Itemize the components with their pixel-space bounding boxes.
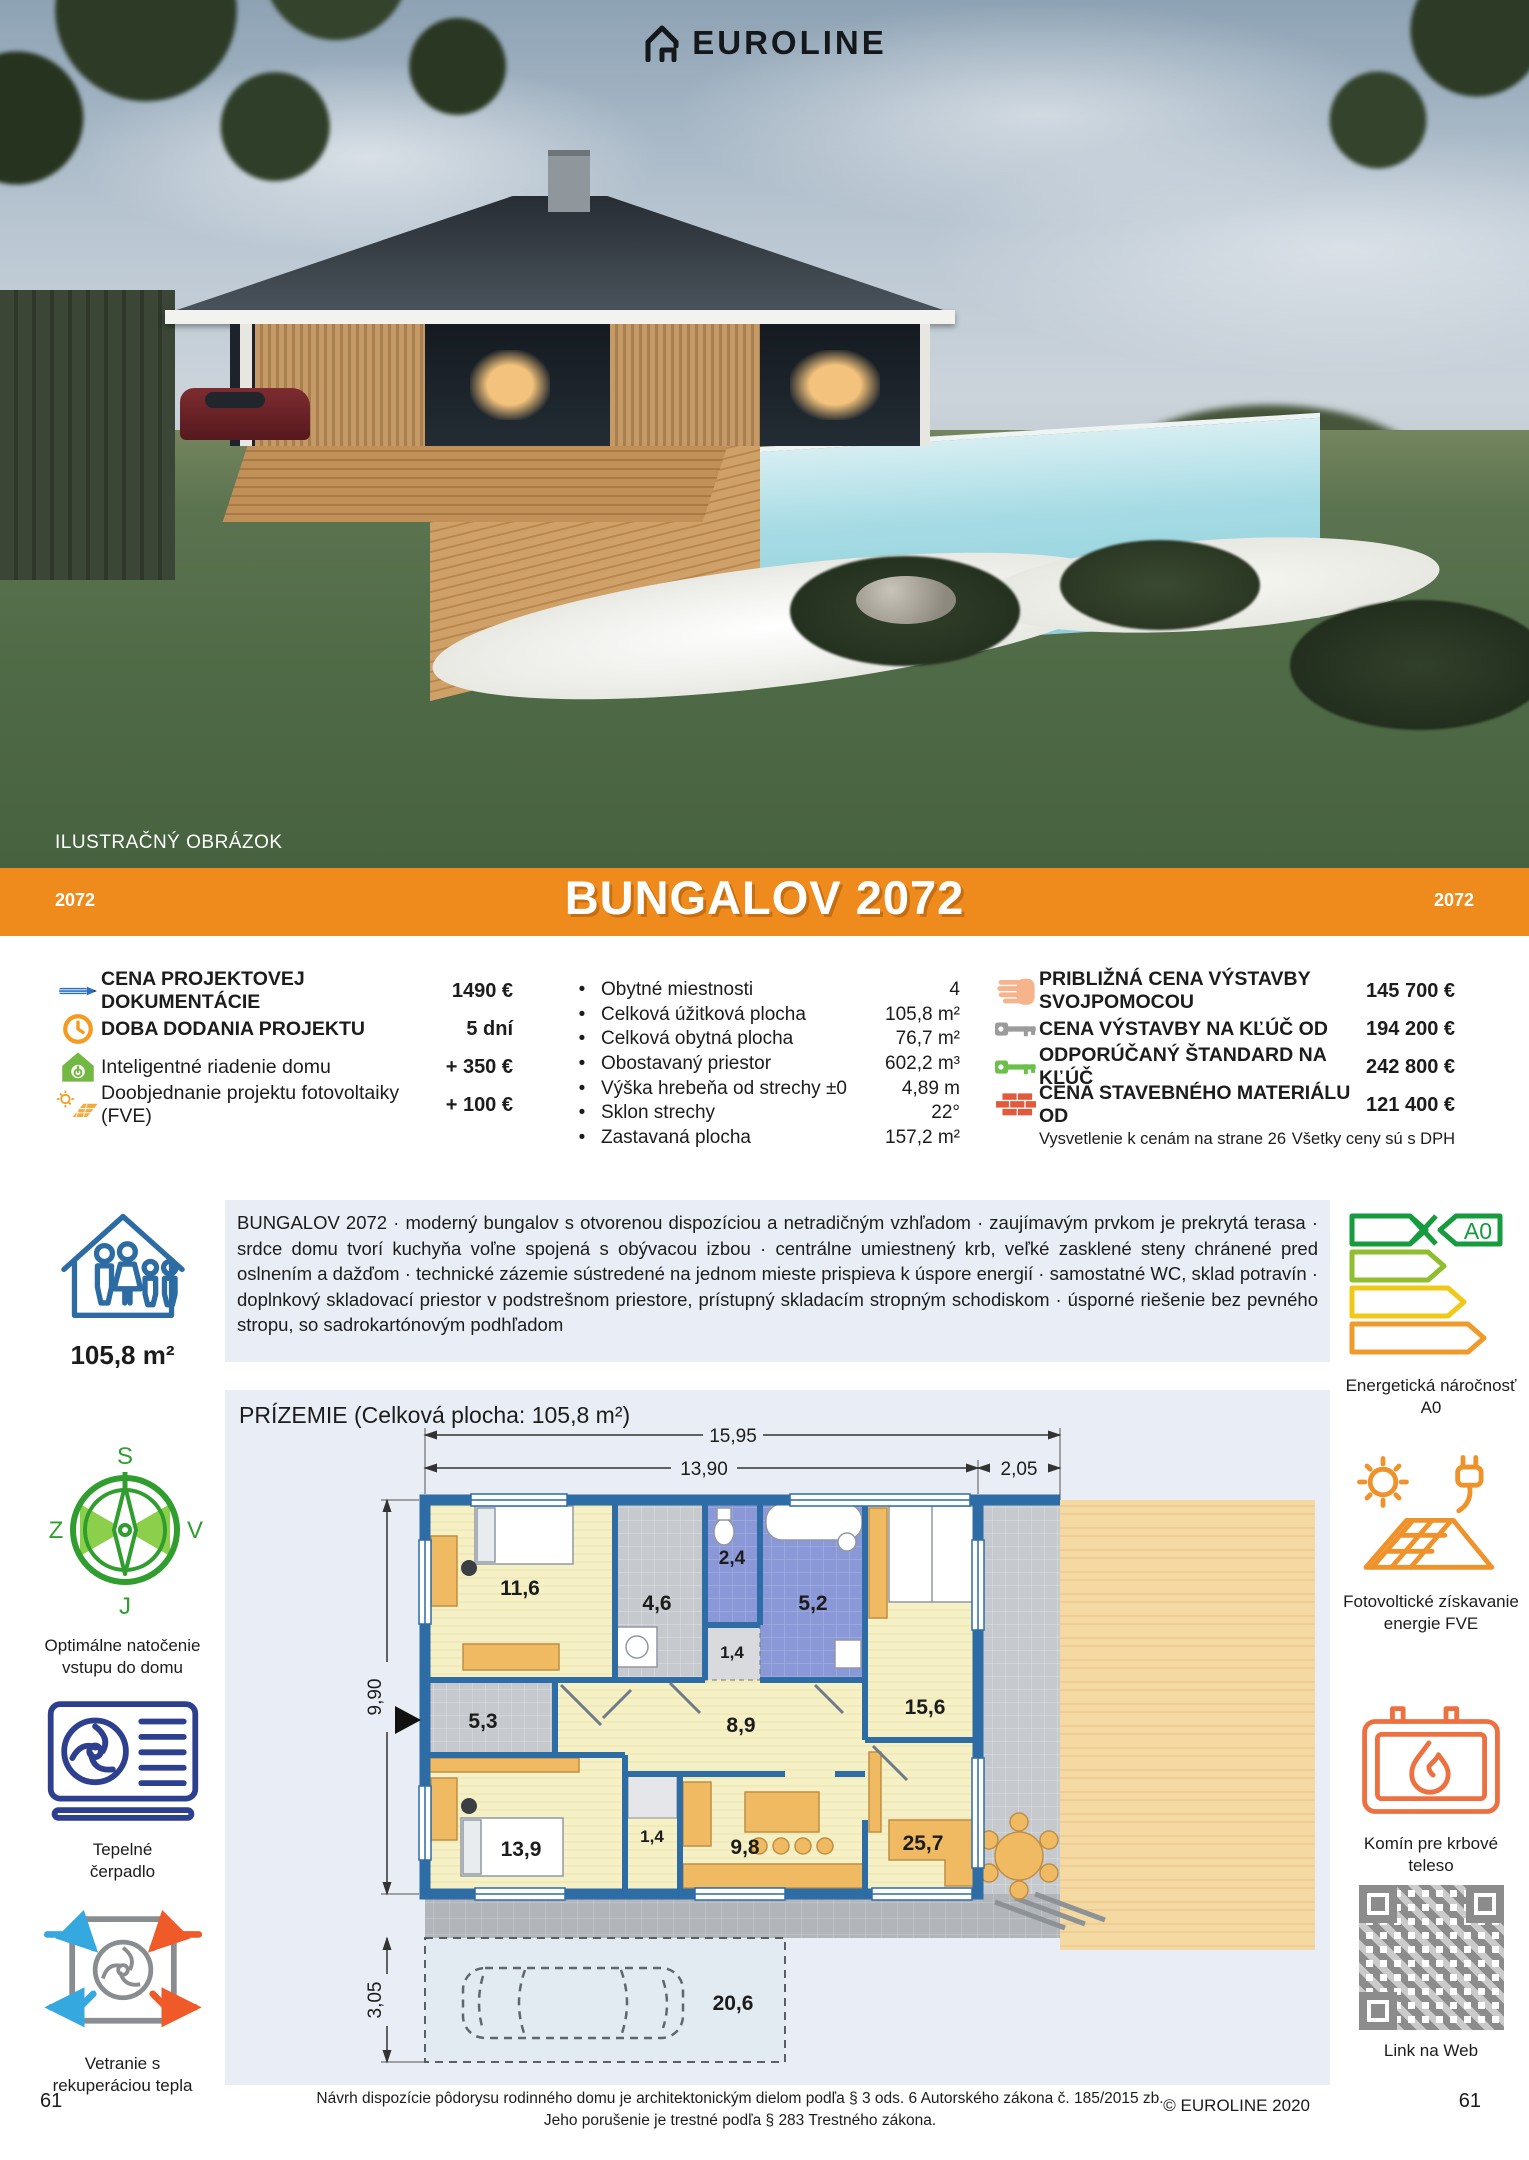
svg-text:S: S — [117, 1443, 133, 1470]
svg-text:Z: Z — [49, 1517, 64, 1544]
feature-caption: Komín pre krbové teleso — [1342, 1833, 1520, 1877]
price-note-left: Vysvetlenie k cenám na strane 26 — [1039, 1130, 1292, 1149]
solar-addon-icon — [55, 1089, 101, 1121]
entry-arrow — [395, 1706, 421, 1734]
feature-compass: S J Z V Optimálne natočenie vstupu do do… — [40, 1442, 205, 1679]
rock — [856, 576, 956, 624]
roof-fascia — [165, 310, 955, 324]
hand-icon — [993, 974, 1039, 1008]
compass-icon: S J Z V — [40, 1442, 210, 1620]
car-window — [205, 392, 265, 408]
bullet — [563, 1127, 601, 1149]
floorplan-drawing: 15,95 13,90 2,05 9,90 3,05 11,6 4,6 2,4 … — [225, 1390, 1330, 2085]
bullet — [563, 979, 601, 1001]
feature-caption: Energetická náročnosť A0 — [1342, 1375, 1520, 1419]
bullet — [563, 1053, 601, 1075]
price-row: DOBA DODANIA PROJEKTU 5 dní — [55, 1010, 513, 1048]
fireplace-icon — [1356, 1700, 1506, 1818]
spec-row: Výška hrebeňa od strechy ±04,89 m — [563, 1076, 960, 1101]
svg-text:4,6: 4,6 — [642, 1592, 671, 1615]
feature-caption: Optimálne natočenie vstupu do domu — [40, 1635, 205, 1679]
price-row: CENA PROJEKTOVEJ DOKUMENTÁCIE 1490 € — [55, 972, 513, 1010]
feature-house-family — [40, 1198, 205, 1337]
bullet — [563, 1028, 601, 1050]
price-row: Doobjednanie projektu fotovoltaiky (FVE)… — [55, 1086, 513, 1124]
svg-text:25,7: 25,7 — [903, 1832, 944, 1855]
svg-text:2,05: 2,05 — [1001, 1459, 1038, 1480]
price-row: ODPORÚČANÝ ŠTANDARD NA KĽÚČ 242 800 € — [993, 1048, 1455, 1086]
svg-text:1,4: 1,4 — [720, 1643, 744, 1662]
smart-home-icon — [55, 1050, 101, 1084]
price-note-right: Všetky ceny sú s DPH — [1292, 1130, 1455, 1149]
pricing-right-block: PRIBLIŽNÁ CENA VÝSTAVBY SVOJPOMOCOU 145 … — [993, 972, 1455, 1149]
key-green-icon — [993, 1055, 1039, 1079]
price-value: 194 200 € — [1366, 1018, 1455, 1041]
bullet — [563, 1078, 601, 1100]
feature-caption: Fotovoltické získavanie energie FVE — [1342, 1591, 1520, 1635]
feature-fireplace: Komín pre krbové teleso — [1342, 1700, 1520, 1877]
wooden-deck — [1060, 1500, 1315, 1950]
description-panel: BUNGALOV 2072 · moderný bungalov s otvor… — [225, 1200, 1330, 1362]
energy-label-icon: A0 — [1346, 1210, 1516, 1360]
photo-caption: ILUSTRAČNÝ OBRÁZOK — [55, 832, 283, 854]
page-number-right: 61 — [1459, 2090, 1481, 2113]
price-value: 1490 € — [452, 980, 513, 1003]
key-gray-icon — [993, 1017, 1039, 1041]
svg-text:5,2: 5,2 — [798, 1592, 827, 1615]
clock-icon — [55, 1012, 101, 1046]
price-label: CENA STAVEBNÉHO MATERIÁLU OD — [1039, 1082, 1366, 1128]
page-number-left: 61 — [40, 2090, 62, 2113]
page-title: BUNGALOV 2072 — [0, 870, 1529, 925]
price-value: 145 700 € — [1366, 980, 1455, 1003]
svg-text:3,05: 3,05 — [365, 1982, 386, 2019]
wood-siding — [610, 324, 760, 446]
svg-text:11,6: 11,6 — [500, 1577, 540, 1600]
closet — [628, 1774, 677, 1818]
description-text: BUNGALOV 2072 · moderný bungalov s otvor… — [225, 1200, 1330, 1348]
price-row: PRIBLIŽNÁ CENA VÝSTAVBY SVOJPOMOCOU 145 … — [993, 972, 1455, 1010]
spec-row: Celková úžitková plocha105,8 m² — [563, 1003, 960, 1028]
svg-text:13,90: 13,90 — [680, 1459, 728, 1480]
feature-photovoltaic: Fotovoltické získavanie energie FVE — [1342, 1452, 1520, 1635]
interior-light — [790, 350, 880, 420]
spec-row: Sklon strechy22° — [563, 1101, 960, 1126]
svg-text:20,6: 20,6 — [713, 1992, 754, 2015]
svg-text:5,3: 5,3 — [468, 1710, 497, 1733]
price-label: DOBA DODANIA PROJEKTU — [101, 1018, 466, 1041]
floorplan-panel: PRÍZEMIE (Celková plocha: 105,8 m²) — [225, 1390, 1330, 2085]
qr-finder — [1359, 1992, 1397, 2030]
bullet — [563, 1004, 601, 1026]
svg-text:15,95: 15,95 — [709, 1426, 757, 1447]
bricks-icon — [993, 1092, 1039, 1118]
price-notes: Vysvetlenie k cenám na strane 26 Všetky … — [993, 1130, 1455, 1149]
house-photo: EUROLINE ILUSTRAČNÝ OBRÁZOK — [0, 0, 1529, 868]
price-label: Doobjednanie projektu fotovoltaiky (FVE) — [101, 1082, 446, 1128]
catalog-page: EUROLINE ILUSTRAČNÝ OBRÁZOK 2072 2072 BU… — [0, 0, 1529, 2160]
qr-code[interactable] — [1359, 1885, 1504, 2030]
terrace-deck — [223, 446, 728, 522]
qr-finder — [1359, 1885, 1397, 1923]
specs-list: Obytné miestnosti4 Celková úžitková ploc… — [563, 978, 960, 1150]
price-value: 242 800 € — [1366, 1056, 1455, 1079]
copyright: © EUROLINE 2020 — [1140, 2096, 1310, 2116]
euroline-house-icon — [642, 22, 682, 62]
svg-text:2,4: 2,4 — [719, 1548, 746, 1569]
feature-caption: Tepelné čerpadlo — [68, 1839, 178, 1883]
svg-text:V: V — [187, 1517, 203, 1544]
price-row: CENA VÝSTAVBY NA KĽÚČ OD 194 200 € — [993, 1010, 1455, 1048]
price-value: + 350 € — [446, 1056, 513, 1079]
feature-energy-label: A0 Energetická náročnosť A0 — [1342, 1210, 1520, 1419]
logo-text: EUROLINE — [692, 24, 887, 61]
legal-text: Návrh dispozície pôdorysu rodinného domu… — [225, 2088, 1255, 2133]
price-value: + 100 € — [446, 1094, 513, 1117]
feature-caption: Link na Web — [1342, 2040, 1520, 2062]
svg-text:13,9: 13,9 — [501, 1838, 542, 1861]
photovoltaic-icon — [1351, 1452, 1511, 1576]
feature-weblink: Link na Web — [1342, 1885, 1520, 2062]
spec-row: Celková obytná plocha76,7 m² — [563, 1027, 960, 1052]
spec-row: Zastavaná plocha157,2 m² — [563, 1126, 960, 1151]
spec-row: Obytné miestnosti4 — [563, 978, 960, 1003]
pricing-left-block: CENA PROJEKTOVEJ DOKUMENTÁCIE 1490 € DOB… — [55, 972, 513, 1124]
interior-light — [470, 350, 550, 420]
svg-text:9,90: 9,90 — [365, 1679, 386, 1716]
price-label: CENA PROJEKTOVEJ DOKUMENTÁCIE — [101, 968, 452, 1014]
price-row: Inteligentné riadenie domu + 350 € — [55, 1048, 513, 1086]
svg-text:J: J — [119, 1593, 131, 1620]
euroline-logo: EUROLINE — [0, 22, 1529, 62]
price-value: 121 400 € — [1366, 1094, 1455, 1117]
feature-ventilation: Vetranie s rekuperáciou tepla — [40, 1898, 205, 2097]
price-label: Inteligentné riadenie domu — [101, 1056, 446, 1079]
bullet — [563, 1102, 601, 1124]
svg-text:1,4: 1,4 — [640, 1827, 664, 1846]
heat-pump-icon — [43, 1698, 203, 1824]
qr-finder — [1466, 1885, 1504, 1923]
feature-caption: Vetranie s rekuperáciou tepla — [40, 2053, 205, 2097]
column — [920, 324, 930, 446]
fence — [0, 290, 175, 580]
svg-text:8,9: 8,9 — [726, 1714, 755, 1737]
svg-text:9,8: 9,8 — [730, 1836, 760, 1859]
price-row: CENA STAVEBNÉHO MATERIÁLU OD 121 400 € — [993, 1086, 1455, 1124]
price-label: CENA VÝSTAVBY NA KĽÚČ OD — [1039, 1018, 1366, 1041]
svg-text:15,6: 15,6 — [905, 1696, 946, 1719]
feature-heat-pump: Tepelné čerpadlo — [40, 1698, 205, 1883]
svg-text:A0: A0 — [1464, 1218, 1492, 1244]
house-family-icon — [48, 1198, 198, 1332]
area-badge: 105,8 m² — [40, 1340, 205, 1371]
bush — [1060, 540, 1260, 630]
spec-row: Obostavaný priestor602,2 m³ — [563, 1052, 960, 1077]
price-label: PRIBLIŽNÁ CENA VÝSTAVBY SVOJPOMOCOU — [1039, 968, 1366, 1014]
price-value: 5 dní — [466, 1018, 513, 1041]
pencil-icon — [55, 980, 101, 1002]
ventilation-icon — [40, 1898, 206, 2038]
